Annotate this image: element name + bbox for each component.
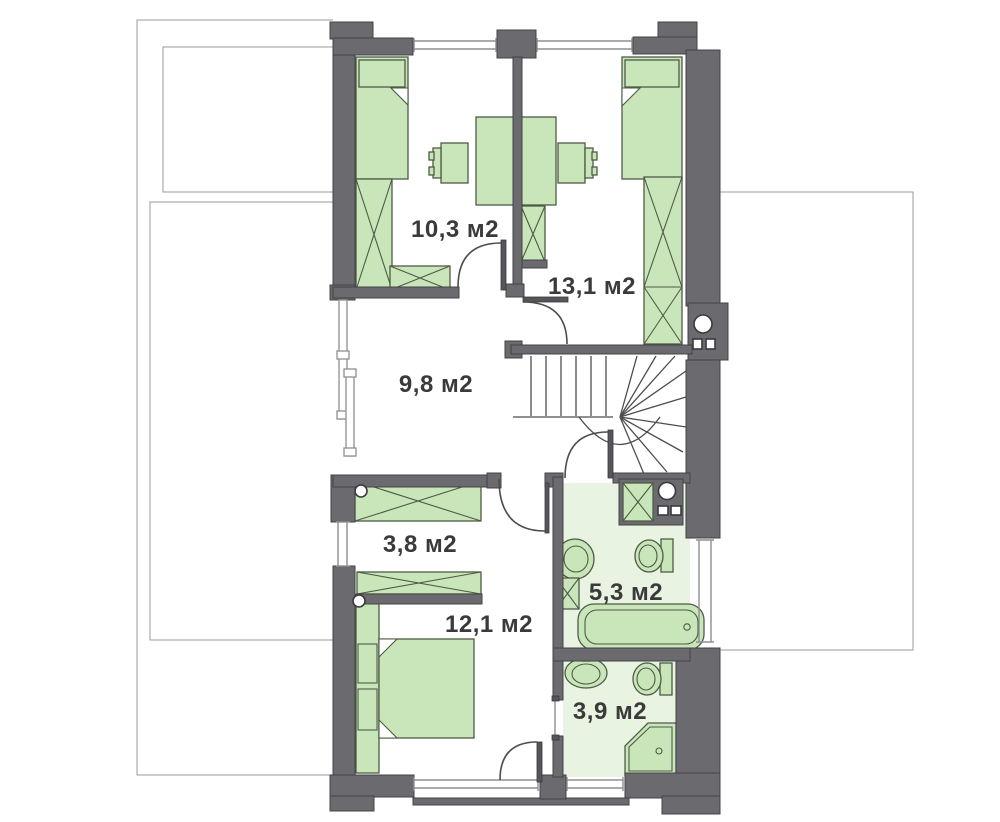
room-label-bedroom-bottom: 12,1 м2 bbox=[445, 611, 533, 638]
pillow bbox=[625, 60, 679, 87]
knee-wall bbox=[337, 300, 356, 456]
wardrobe-knob bbox=[355, 485, 367, 497]
exterior-wall-right-top bbox=[686, 50, 720, 306]
room-label-bathroom-large: 5,3 м2 bbox=[589, 579, 663, 606]
window-bedroom-top-right bbox=[537, 38, 632, 52]
window-bedroom-bottom bbox=[414, 777, 538, 791]
exterior-wall-left-top bbox=[333, 22, 355, 296]
bathtub bbox=[578, 604, 704, 650]
door-swing-bedroom-top-right bbox=[523, 302, 567, 344]
door-swing-closet bbox=[499, 479, 545, 531]
chair-left-armrest bbox=[429, 152, 434, 160]
roof-outline-left-lower bbox=[150, 202, 333, 640]
corner-bottom-right-step bbox=[662, 796, 720, 814]
boiler bbox=[659, 483, 676, 500]
chair-right-seat bbox=[558, 143, 585, 183]
bathroom-small-west-wall-lower bbox=[553, 736, 563, 777]
pillow bbox=[359, 60, 405, 87]
door-leaf-bedroom-top-left bbox=[501, 240, 506, 290]
roof-outline-left-outer bbox=[137, 20, 333, 775]
wardrobe-knob bbox=[353, 595, 365, 607]
knee-wall-segment bbox=[346, 371, 354, 456]
chair-right-armrest bbox=[592, 167, 597, 175]
door-swing-bedroom-top-left bbox=[458, 243, 501, 287]
closet-bedroom-wall bbox=[355, 594, 482, 604]
partition-cap bbox=[506, 284, 524, 297]
headboard-unit bbox=[356, 601, 379, 773]
exterior-wall-left-bottom bbox=[333, 566, 355, 777]
wall-between-bathrooms bbox=[553, 648, 690, 661]
corner-top-right bbox=[658, 22, 697, 38]
bathroom-small-west-wall-upper bbox=[553, 661, 563, 700]
window-bathroom-small bbox=[567, 777, 623, 791]
double-bed bbox=[379, 639, 474, 738]
partition-bedrooms bbox=[513, 57, 522, 287]
staircase bbox=[513, 356, 686, 474]
toilet-tank bbox=[660, 663, 672, 695]
window-bedroom-top-left bbox=[414, 38, 496, 52]
corner-bottom-right bbox=[625, 773, 720, 798]
room-label-hall: 9,8 м2 bbox=[399, 371, 473, 398]
door-jamb-tick bbox=[552, 735, 559, 740]
closet-north-wall bbox=[333, 475, 491, 487]
knee-wall-tick bbox=[344, 448, 356, 456]
exterior-wall-right-mid bbox=[686, 360, 720, 538]
window-bathroom-large bbox=[696, 540, 714, 642]
bottom-wall-outer-face bbox=[413, 798, 629, 805]
floor-plan-page: 10,3 м2 13,1 м2 9,8 м2 3,8 м2 12,1 м2 5,… bbox=[0, 0, 1000, 822]
vent-opening bbox=[706, 339, 715, 349]
window-closet-left bbox=[336, 522, 350, 566]
chair-right-armrest bbox=[592, 152, 597, 160]
floor-plan-drawing: 10,3 м2 13,1 м2 9,8 м2 3,8 м2 12,1 м2 5,… bbox=[0, 0, 1000, 822]
top-center-pier bbox=[497, 30, 536, 58]
door-leaf-bedroom-bottom bbox=[537, 742, 542, 782]
control-box bbox=[671, 506, 681, 515]
tall-wardrobe bbox=[644, 177, 682, 344]
bathroom-large-west-wall bbox=[553, 477, 563, 653]
chair-left-armrest bbox=[429, 167, 434, 175]
corner-top-left bbox=[330, 22, 373, 39]
room-label-bedroom-top-right: 13,1 м2 bbox=[548, 273, 636, 300]
corner-bottom-left bbox=[330, 775, 414, 797]
room-label-bathroom-small: 3,9 м2 bbox=[573, 698, 647, 725]
stair-top-wall bbox=[511, 345, 692, 354]
knee-wall-tick bbox=[337, 351, 349, 359]
roof-outline-right bbox=[720, 192, 913, 650]
bedroom-top-left-south-wall bbox=[333, 287, 459, 298]
control-box bbox=[658, 506, 668, 515]
bottom-pier bbox=[540, 775, 566, 799]
corner-bottom-left-step bbox=[330, 796, 374, 811]
flue-opening bbox=[694, 315, 712, 333]
corner-top-left-step bbox=[333, 38, 413, 55]
vent-opening bbox=[693, 339, 702, 349]
door-swing-bedroom-bottom bbox=[500, 742, 537, 780]
chair-left-seat bbox=[441, 143, 468, 183]
door-jamb-tick bbox=[552, 696, 559, 701]
knee-wall-tick bbox=[344, 369, 356, 377]
roof-outline-left-upper bbox=[163, 47, 333, 192]
door-leaf-bathroom-large bbox=[608, 430, 613, 478]
door-leaf-closet bbox=[545, 483, 549, 533]
exterior-wall-right-bottom bbox=[676, 648, 720, 777]
room-label-wardrobe-room: 3,8 м2 bbox=[383, 531, 457, 558]
room-label-bedroom-top-left: 10,3 м2 bbox=[411, 216, 499, 243]
shelf-unit-cap bbox=[519, 260, 547, 268]
